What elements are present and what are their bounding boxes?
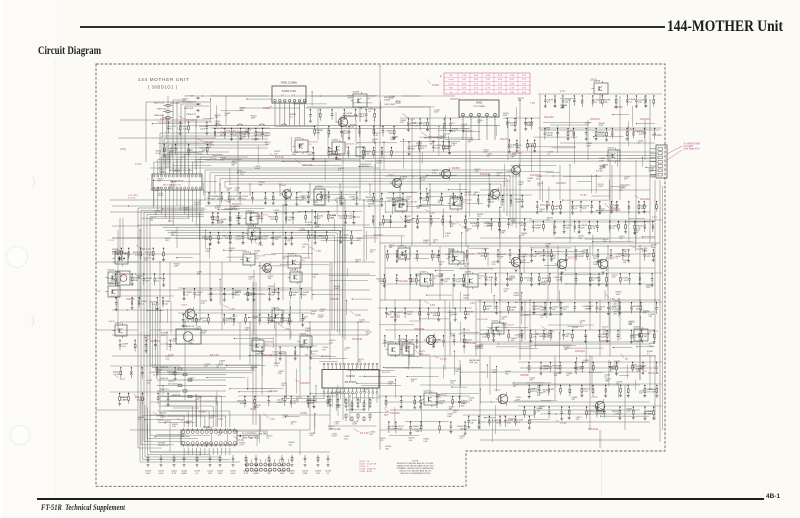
svg-text:J4001: J4001 bbox=[263, 108, 270, 110]
svg-text:0.1: 0.1 bbox=[327, 473, 331, 475]
svg-text:47K: 47K bbox=[537, 395, 541, 397]
svg-text:10K: 10K bbox=[554, 375, 558, 377]
svg-text:15P: 15P bbox=[507, 422, 511, 424]
svg-text:6.8K: 6.8K bbox=[189, 342, 194, 344]
svg-text:Q4043: Q4043 bbox=[634, 327, 641, 329]
svg-text:5.3V: 5.3V bbox=[498, 83, 503, 85]
svg-text:10P: 10P bbox=[358, 361, 362, 363]
svg-text:1.5K: 1.5K bbox=[497, 333, 502, 335]
svg-text:To CONTROL Unit J801: To CONTROL Unit J801 bbox=[242, 433, 269, 436]
svg-text:6.8K: 6.8K bbox=[433, 315, 438, 317]
svg-text:2SA1162: 2SA1162 bbox=[226, 130, 236, 133]
svg-text:560: 560 bbox=[604, 102, 608, 104]
svg-text:10K: 10K bbox=[474, 362, 478, 364]
svg-text:10P: 10P bbox=[316, 473, 320, 475]
svg-text:33K: 33K bbox=[186, 423, 190, 425]
svg-text:DTC144E: DTC144E bbox=[540, 204, 551, 207]
svg-text:TX 0V: TX 0V bbox=[580, 194, 587, 197]
svg-text:2SC2712: 2SC2712 bbox=[522, 256, 532, 258]
svg-text:Mid: Mid bbox=[449, 88, 453, 90]
svg-text:DTA144E: DTA144E bbox=[480, 173, 491, 176]
svg-text:6.8K: 6.8K bbox=[393, 204, 398, 206]
svg-text:Q4140: Q4140 bbox=[272, 308, 279, 310]
svg-text:1000P: 1000P bbox=[194, 204, 200, 206]
svg-text:6.8K: 6.8K bbox=[309, 435, 314, 437]
svg-text:2SC2712: 2SC2712 bbox=[256, 256, 266, 258]
svg-text:144 MOTHER UNIT: 144 MOTHER UNIT bbox=[138, 77, 189, 82]
svg-text:2SC4116: 2SC4116 bbox=[610, 208, 620, 211]
svg-text:10P: 10P bbox=[274, 212, 278, 214]
svg-text:15K: 15K bbox=[619, 238, 623, 240]
svg-text:DTC144E: DTC144E bbox=[648, 372, 659, 375]
svg-text:47P: 47P bbox=[571, 399, 575, 401]
svg-text:0.047: 0.047 bbox=[491, 372, 497, 374]
svg-text:47P: 47P bbox=[196, 399, 200, 401]
svg-text:2SK508: 2SK508 bbox=[265, 342, 274, 344]
svg-text:Q4021: Q4021 bbox=[115, 323, 122, 325]
svg-text:2.1V: 2.1V bbox=[560, 90, 565, 93]
svg-text:100: 100 bbox=[513, 386, 517, 388]
svg-text:100P: 100P bbox=[265, 144, 270, 146]
svg-text:1000P: 1000P bbox=[650, 177, 656, 179]
svg-text:100: 100 bbox=[588, 308, 592, 310]
svg-text:JP1: JP1 bbox=[449, 75, 453, 77]
svg-text:1000P: 1000P bbox=[334, 288, 340, 290]
svg-text:6.8K: 6.8K bbox=[510, 309, 515, 311]
svg-text:15P: 15P bbox=[537, 185, 541, 187]
svg-text:(F): (F) bbox=[368, 98, 371, 100]
svg-text:6.8K: 6.8K bbox=[231, 199, 236, 201]
svg-text:2.2K: 2.2K bbox=[147, 254, 152, 256]
svg-text:1/16W: 1/16W bbox=[432, 84, 440, 87]
svg-text:Q4144: Q4144 bbox=[246, 211, 253, 213]
svg-text:33K: 33K bbox=[281, 385, 285, 387]
svg-text:2SK508: 2SK508 bbox=[346, 144, 355, 146]
svg-text:2SC4047: 2SC4047 bbox=[368, 96, 378, 98]
svg-text:4.7V: 4.7V bbox=[486, 88, 491, 90]
svg-text:0.047: 0.047 bbox=[255, 354, 261, 356]
svg-text:7.6V: 7.6V bbox=[482, 248, 487, 251]
svg-text:4.7P: 4.7P bbox=[450, 336, 455, 338]
svg-text:TX POWER: TX POWER bbox=[473, 106, 485, 108]
svg-text:10K: 10K bbox=[254, 253, 258, 255]
svg-text:C4134 : BL/M: C4134 : BL/M bbox=[359, 471, 372, 473]
svg-text:10P: 10P bbox=[533, 256, 537, 258]
svg-text:33K: 33K bbox=[389, 133, 393, 135]
svg-text:TX 5V: TX 5V bbox=[108, 240, 114, 242]
svg-text:8.5V: 8.5V bbox=[498, 79, 503, 81]
svg-text:100P: 100P bbox=[511, 221, 516, 223]
svg-text:0.1: 0.1 bbox=[344, 350, 348, 352]
svg-text:220: 220 bbox=[543, 392, 547, 394]
svg-text:1K: 1K bbox=[291, 424, 294, 426]
svg-text:Q4093: Q4093 bbox=[398, 246, 405, 248]
svg-text:10P: 10P bbox=[466, 231, 470, 233]
svg-text:15P: 15P bbox=[171, 234, 175, 236]
svg-text:R4056 6.8K: R4056 6.8K bbox=[154, 115, 165, 117]
svg-text:2.1V: 2.1V bbox=[505, 180, 510, 183]
svg-text:560: 560 bbox=[330, 342, 334, 344]
svg-text:6.5V: 6.5V bbox=[522, 92, 527, 94]
svg-text:6.8K: 6.8K bbox=[310, 403, 315, 405]
svg-text:7.6V: 7.6V bbox=[300, 228, 305, 231]
svg-text:220: 220 bbox=[486, 309, 490, 311]
svg-text:DTC144E: DTC144E bbox=[302, 164, 313, 167]
svg-text:4.7K: 4.7K bbox=[310, 238, 315, 240]
svg-text:Low2: Low2 bbox=[449, 83, 455, 85]
svg-text:1000P: 1000P bbox=[541, 284, 547, 286]
svg-text:1.5K: 1.5K bbox=[405, 222, 410, 224]
svg-text:1: 1 bbox=[147, 179, 149, 181]
svg-text:4.7K: 4.7K bbox=[235, 190, 240, 192]
svg-text:2.2K: 2.2K bbox=[406, 199, 411, 201]
svg-text:Q4197: Q4197 bbox=[252, 338, 259, 340]
svg-text:L4023 10: L4023 10 bbox=[172, 394, 180, 396]
svg-text:1.5: 1.5 bbox=[611, 228, 615, 230]
svg-text:Q4128: Q4128 bbox=[290, 270, 297, 272]
svg-text:1000P: 1000P bbox=[264, 135, 271, 137]
svg-text:100P: 100P bbox=[174, 266, 179, 268]
svg-text:100P: 100P bbox=[290, 473, 295, 475]
svg-text:2SK508: 2SK508 bbox=[401, 346, 410, 348]
svg-text:PIN DIODE: PIN DIODE bbox=[477, 319, 488, 321]
svg-text:0.1: 0.1 bbox=[267, 438, 271, 440]
svg-text:10P: 10P bbox=[490, 201, 494, 203]
svg-text:15K: 15K bbox=[623, 262, 627, 264]
svg-text:L4018 10: L4018 10 bbox=[160, 367, 168, 369]
svg-text:1.5K: 1.5K bbox=[366, 334, 371, 336]
svg-text:33P: 33P bbox=[267, 473, 271, 475]
svg-text:220: 220 bbox=[501, 319, 505, 321]
svg-text:BUFF: BUFF bbox=[335, 159, 341, 161]
svg-text:33K: 33K bbox=[651, 391, 655, 393]
svg-text:2.2K: 2.2K bbox=[217, 434, 222, 436]
svg-text:10P: 10P bbox=[599, 211, 603, 213]
svg-text:0.1: 0.1 bbox=[465, 194, 469, 196]
svg-text:4.0V: 4.0V bbox=[462, 83, 467, 85]
svg-text:1000P: 1000P bbox=[253, 473, 259, 475]
svg-text:Q4164: Q4164 bbox=[248, 226, 255, 228]
svg-text:1.5: 1.5 bbox=[487, 280, 491, 282]
svg-text:1000P: 1000P bbox=[255, 168, 261, 170]
svg-text:10P: 10P bbox=[537, 410, 541, 412]
svg-text:FM IF DET: FM IF DET bbox=[345, 381, 357, 384]
svg-text:2SC4047: 2SC4047 bbox=[300, 382, 311, 385]
svg-text:4.7P: 4.7P bbox=[646, 256, 651, 258]
svg-text:10P: 10P bbox=[455, 199, 459, 201]
svg-text:4.7P: 4.7P bbox=[639, 134, 644, 136]
svg-text:1000P: 1000P bbox=[547, 135, 554, 137]
svg-text:1.5K: 1.5K bbox=[350, 127, 355, 129]
svg-text:2SK508: 2SK508 bbox=[452, 168, 461, 170]
svg-text:2SC2712: 2SC2712 bbox=[390, 316, 401, 319]
svg-text:100P: 100P bbox=[384, 414, 389, 416]
svg-text:1.5K: 1.5K bbox=[146, 382, 151, 384]
svg-text:7.6V: 7.6V bbox=[258, 244, 263, 247]
svg-text:2SC2712: 2SC2712 bbox=[634, 130, 645, 133]
svg-text:100P: 100P bbox=[487, 226, 492, 228]
svg-text:(See Page M-1): (See Page M-1) bbox=[242, 436, 259, 439]
svg-text:1.5: 1.5 bbox=[312, 353, 316, 355]
svg-text:100: 100 bbox=[519, 225, 523, 227]
svg-text:10K: 10K bbox=[278, 373, 282, 375]
svg-text:4.7P: 4.7P bbox=[627, 411, 632, 413]
svg-text:4.7P: 4.7P bbox=[239, 445, 244, 447]
svg-text:15K: 15K bbox=[649, 316, 653, 318]
svg-text:1.5: 1.5 bbox=[511, 147, 515, 149]
svg-text:10P: 10P bbox=[233, 135, 237, 137]
svg-text:0.1: 0.1 bbox=[338, 170, 342, 172]
svg-text:4.7K: 4.7K bbox=[270, 219, 275, 221]
svg-text:2.2K: 2.2K bbox=[135, 255, 140, 257]
svg-text:15K: 15K bbox=[401, 179, 405, 181]
svg-text:100P: 100P bbox=[408, 342, 414, 344]
svg-text:0.1: 0.1 bbox=[633, 337, 637, 339]
svg-text:100P: 100P bbox=[200, 129, 206, 131]
svg-text:2.1V: 2.1V bbox=[652, 216, 657, 219]
svg-text:33P: 33P bbox=[302, 319, 306, 321]
svg-text:1K: 1K bbox=[580, 323, 583, 325]
svg-text:560: 560 bbox=[158, 181, 162, 183]
svg-text:15K: 15K bbox=[282, 258, 286, 260]
svg-text:3.7V: 3.7V bbox=[522, 79, 527, 81]
svg-text:10P: 10P bbox=[411, 149, 415, 151]
svg-text:4.7K: 4.7K bbox=[202, 321, 207, 323]
svg-text:10K: 10K bbox=[554, 208, 558, 210]
svg-text:7.0V: 7.0V bbox=[462, 79, 467, 81]
svg-text:1.5K: 1.5K bbox=[423, 441, 428, 443]
svg-text:3.3V: 3.3V bbox=[498, 88, 503, 90]
svg-text:100: 100 bbox=[399, 206, 403, 208]
svg-text:220P: 220P bbox=[218, 473, 223, 475]
svg-text:1.5K: 1.5K bbox=[121, 399, 126, 401]
svg-text:0.8V: 0.8V bbox=[470, 302, 475, 305]
svg-text:2SK508: 2SK508 bbox=[330, 298, 339, 301]
svg-text:33K: 33K bbox=[385, 448, 389, 450]
svg-text:1.5K: 1.5K bbox=[334, 424, 339, 426]
svg-text:2SC4047: 2SC4047 bbox=[463, 200, 473, 202]
svg-text:10P: 10P bbox=[566, 227, 570, 229]
svg-text:10: 10 bbox=[496, 422, 499, 424]
svg-text:33P: 33P bbox=[429, 143, 433, 145]
svg-text:0.01: 0.01 bbox=[320, 311, 325, 313]
svg-text:560: 560 bbox=[150, 219, 154, 221]
svg-text:J4003: J4003 bbox=[174, 171, 181, 173]
svg-text:33P: 33P bbox=[317, 218, 321, 220]
svg-text:2SA1162: 2SA1162 bbox=[204, 141, 214, 144]
svg-text:4.7K: 4.7K bbox=[491, 264, 496, 266]
svg-text:33P: 33P bbox=[303, 295, 307, 297]
svg-text:4.7P: 4.7P bbox=[614, 363, 619, 365]
svg-text:IC4002 TCXO: IC4002 TCXO bbox=[282, 91, 297, 93]
svg-text:X4001 12.8MHz: X4001 12.8MHz bbox=[281, 83, 298, 85]
svg-text:7.6V: 7.6V bbox=[316, 250, 321, 253]
svg-text:0.047: 0.047 bbox=[230, 473, 236, 475]
svg-text:2.2K: 2.2K bbox=[475, 171, 480, 173]
svg-text:4.5V: 4.5V bbox=[430, 304, 435, 307]
svg-text:1/16W: 1/16W bbox=[252, 138, 260, 141]
svg-text:0.047: 0.047 bbox=[262, 239, 268, 241]
svg-text:4.7P: 4.7P bbox=[185, 321, 190, 323]
svg-text:4.7K: 4.7K bbox=[339, 218, 344, 220]
svg-text:CERAMIC FIL: CERAMIC FIL bbox=[181, 325, 195, 328]
svg-text:2SC2712: 2SC2712 bbox=[450, 98, 461, 101]
svg-text:4.7K: 4.7K bbox=[647, 391, 652, 393]
svg-text:4.7P: 4.7P bbox=[232, 318, 237, 320]
svg-text:2SK508: 2SK508 bbox=[614, 106, 623, 109]
svg-text:2.2K: 2.2K bbox=[336, 407, 341, 409]
svg-text:5.8V: 5.8V bbox=[474, 83, 479, 85]
svg-text:1000P: 1000P bbox=[181, 473, 187, 475]
svg-text:0.047: 0.047 bbox=[598, 186, 604, 188]
svg-text:0.047: 0.047 bbox=[456, 281, 462, 283]
svg-text:33K: 33K bbox=[314, 202, 318, 204]
svg-text:100P: 100P bbox=[599, 125, 604, 127]
svg-text:10K: 10K bbox=[450, 383, 454, 385]
svg-text:33K: 33K bbox=[292, 295, 296, 297]
svg-text:220: 220 bbox=[450, 226, 454, 228]
svg-text:560: 560 bbox=[520, 262, 524, 264]
svg-text:220P: 220P bbox=[305, 330, 310, 332]
svg-text:33K: 33K bbox=[215, 117, 219, 119]
svg-text:0.01: 0.01 bbox=[374, 135, 379, 137]
svg-text:4.7K: 4.7K bbox=[634, 232, 639, 234]
svg-text:0.8V: 0.8V bbox=[218, 418, 223, 421]
svg-text:47P: 47P bbox=[323, 198, 327, 200]
svg-text:33P: 33P bbox=[227, 190, 231, 192]
svg-text:0.047: 0.047 bbox=[158, 473, 164, 475]
svg-text:1.9V: 1.9V bbox=[462, 75, 467, 77]
svg-text:4.7P: 4.7P bbox=[338, 124, 343, 126]
svg-text:Q4035: Q4035 bbox=[295, 138, 302, 140]
svg-text:9.6V: 9.6V bbox=[510, 92, 515, 94]
svg-text:100P: 100P bbox=[599, 160, 604, 162]
svg-text:10P: 10P bbox=[229, 250, 233, 252]
svg-text:15K: 15K bbox=[422, 200, 426, 202]
svg-text:220P: 220P bbox=[416, 145, 421, 147]
svg-text:C4080 4.7P: C4080 4.7P bbox=[186, 114, 197, 116]
svg-text:4.7K: 4.7K bbox=[529, 146, 534, 148]
svg-text:33K: 33K bbox=[231, 165, 235, 167]
svg-text:Hi: Hi bbox=[450, 92, 453, 94]
svg-text:1000P: 1000P bbox=[217, 223, 223, 225]
svg-text:1.5: 1.5 bbox=[629, 102, 633, 104]
svg-text:220P: 220P bbox=[342, 238, 348, 240]
svg-text:10K: 10K bbox=[460, 429, 464, 431]
svg-text:0.01: 0.01 bbox=[248, 295, 253, 297]
svg-text:Q4180: Q4180 bbox=[300, 334, 307, 336]
svg-text:2SC2712: 2SC2712 bbox=[649, 331, 659, 333]
svg-text:2SA1162: 2SA1162 bbox=[268, 390, 278, 393]
svg-text:9.6V: 9.6V bbox=[486, 92, 491, 94]
svg-text:2SA1162: 2SA1162 bbox=[398, 280, 408, 283]
svg-text:4.5V: 4.5V bbox=[474, 92, 479, 94]
svg-text:(F): (F) bbox=[309, 144, 312, 146]
svg-text:5.6V: 5.6V bbox=[462, 92, 467, 94]
svg-text:0.1: 0.1 bbox=[368, 111, 372, 113]
svg-text:0.047: 0.047 bbox=[546, 335, 552, 337]
svg-text:4.7K: 4.7K bbox=[432, 172, 437, 174]
svg-text:10P: 10P bbox=[444, 281, 448, 283]
svg-text:100: 100 bbox=[225, 238, 229, 240]
svg-text:1.5: 1.5 bbox=[517, 422, 521, 424]
svg-text:2SC2712: 2SC2712 bbox=[568, 258, 578, 260]
svg-text:0.047: 0.047 bbox=[518, 184, 524, 186]
svg-text:10P: 10P bbox=[208, 473, 212, 475]
svg-text:(F): (F) bbox=[302, 260, 305, 262]
svg-text:2SK508: 2SK508 bbox=[479, 276, 488, 278]
svg-text:4.7K: 4.7K bbox=[170, 184, 175, 186]
svg-text:1K: 1K bbox=[572, 329, 575, 331]
svg-text:(F): (F) bbox=[121, 276, 124, 278]
svg-text:1K: 1K bbox=[138, 419, 141, 421]
svg-text:4.7K: 4.7K bbox=[599, 413, 604, 415]
svg-text:2.1V: 2.1V bbox=[510, 88, 515, 90]
svg-text:DTC144E: DTC144E bbox=[465, 342, 476, 345]
svg-text:Q4159: Q4159 bbox=[243, 252, 250, 254]
svg-text:J4003A: J4003A bbox=[158, 442, 165, 445]
svg-text:0.1: 0.1 bbox=[540, 317, 544, 319]
svg-text:2SC2712: 2SC2712 bbox=[609, 258, 619, 260]
svg-text:15P: 15P bbox=[477, 122, 481, 124]
svg-text:2SA1162: 2SA1162 bbox=[544, 116, 554, 119]
svg-text:220P: 220P bbox=[434, 112, 439, 114]
svg-text:560: 560 bbox=[614, 313, 618, 315]
svg-text:1.5K: 1.5K bbox=[115, 374, 120, 376]
svg-text:6.8K: 6.8K bbox=[438, 276, 443, 278]
svg-text:0.047: 0.047 bbox=[161, 335, 167, 337]
svg-text:C4118 47P: C4118 47P bbox=[184, 108, 194, 110]
svg-text:TP: TP bbox=[305, 354, 308, 357]
svg-text:1000P: 1000P bbox=[318, 317, 324, 319]
svg-text:1.5K: 1.5K bbox=[344, 438, 349, 440]
svg-text:2SC4116: 2SC4116 bbox=[373, 234, 383, 237]
svg-text:560: 560 bbox=[555, 368, 559, 370]
svg-text:(F): (F) bbox=[256, 258, 259, 260]
svg-text:(F): (F) bbox=[434, 278, 437, 280]
svg-text:100: 100 bbox=[288, 219, 292, 221]
svg-text:DTA144E: DTA144E bbox=[414, 328, 425, 331]
svg-text:L4020 10: L4020 10 bbox=[160, 378, 168, 380]
svg-text:2.8V: 2.8V bbox=[522, 88, 527, 90]
svg-text:DTA144E: DTA144E bbox=[588, 428, 599, 431]
svg-text:47P: 47P bbox=[565, 336, 569, 338]
svg-text:100: 100 bbox=[158, 422, 162, 424]
svg-text:Q4140: Q4140 bbox=[108, 270, 115, 272]
svg-text:8.5V: 8.5V bbox=[510, 79, 515, 81]
svg-text:0.1: 0.1 bbox=[510, 225, 514, 227]
svg-text:15P: 15P bbox=[468, 142, 472, 144]
svg-text:1000P: 1000P bbox=[540, 309, 546, 311]
svg-text:1000P: 1000P bbox=[513, 295, 519, 297]
svg-text:2SC2712: 2SC2712 bbox=[259, 215, 269, 217]
svg-text:220: 220 bbox=[576, 419, 580, 421]
svg-text:0.1: 0.1 bbox=[574, 208, 578, 210]
svg-text:100P: 100P bbox=[516, 202, 522, 204]
svg-text:1/16W: 1/16W bbox=[300, 412, 308, 415]
svg-text:(F): (F) bbox=[465, 256, 468, 258]
svg-text:(S.M): (S.M) bbox=[548, 388, 554, 391]
svg-text:0.01: 0.01 bbox=[624, 280, 629, 282]
svg-text:8.4V: 8.4V bbox=[510, 83, 515, 85]
svg-text:TX 0V: TX 0V bbox=[199, 411, 206, 414]
svg-text:1.5K: 1.5K bbox=[388, 384, 393, 386]
svg-text:4.7K: 4.7K bbox=[436, 396, 441, 398]
svg-text:(S.M): (S.M) bbox=[120, 148, 126, 151]
svg-text:2.8V: 2.8V bbox=[486, 75, 491, 77]
svg-text:0.01: 0.01 bbox=[307, 154, 312, 156]
svg-text:CERAMIC UNLESS WITH TANTALUM ;: CERAMIC UNLESS WITH TANTALUM ; bbox=[396, 467, 434, 470]
